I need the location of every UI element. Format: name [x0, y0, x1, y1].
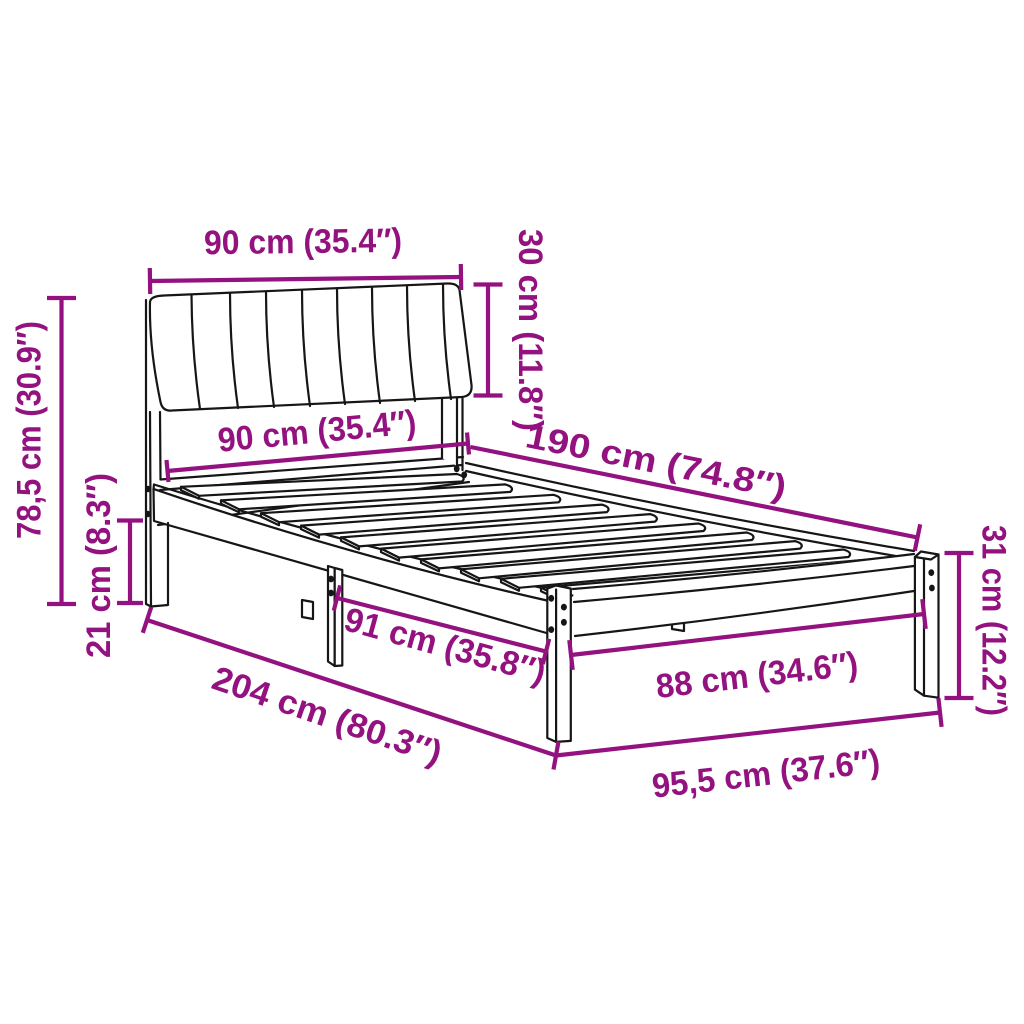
- svg-text:78,5 cm (30.9″): 78,5 cm (30.9″): [11, 321, 49, 539]
- svg-text:90 cm (35.4″): 90 cm (35.4″): [204, 222, 402, 262]
- svg-text:30 cm (11.8″): 30 cm (11.8″): [511, 229, 549, 431]
- svg-text:21 cm (8.3″): 21 cm (8.3″): [80, 473, 118, 658]
- svg-text:31 cm (12.2″): 31 cm (12.2″): [975, 525, 1013, 716]
